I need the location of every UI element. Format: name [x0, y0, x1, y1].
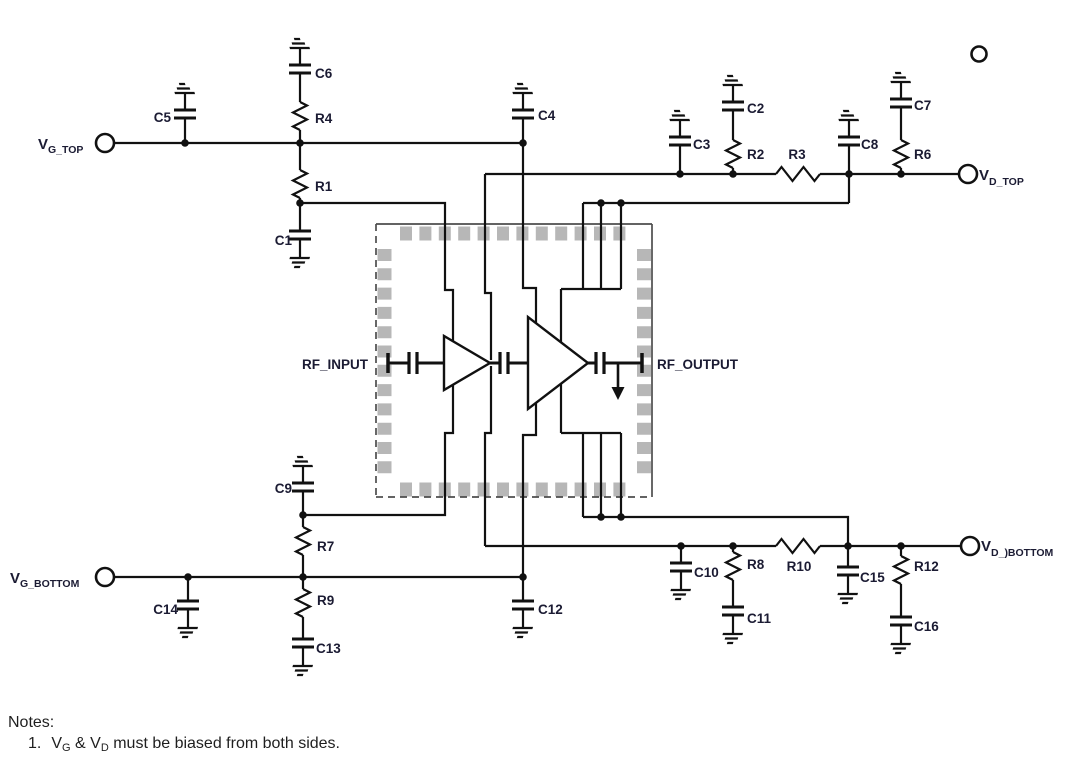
- resistor-r8: [726, 546, 740, 606]
- ground-icon: [835, 594, 858, 603]
- ground-icon: [836, 111, 859, 120]
- ground-icon: [172, 84, 195, 93]
- label-c15: C15: [860, 570, 885, 585]
- label-vd-top: VD_TOP: [979, 167, 1024, 188]
- ground-icon: [888, 644, 911, 653]
- wire-vd-bottom-stub: [583, 517, 848, 546]
- ground-icon: [510, 628, 533, 637]
- vg-top-terminal: [96, 134, 114, 152]
- capacitor-c14: [177, 577, 199, 627]
- amplifier-stage-2: [528, 317, 588, 409]
- series-capacitor-2: [500, 352, 508, 374]
- capacitor-c12: [512, 577, 534, 627]
- ground-icon: [287, 39, 310, 48]
- capacitor-c11: [722, 607, 744, 633]
- schematic-canvas: C5 C6 R4 R1 C1 C4 C3 C2 R2 R3 C8 C7 R6 C…: [0, 0, 1080, 771]
- ground-icon: [290, 457, 313, 466]
- resistor-r6: [894, 140, 908, 174]
- notes-block: Notes: 1.VG & VD must be biased from bot…: [8, 714, 340, 754]
- label-c12: C12: [538, 602, 563, 617]
- capacitor-c4: [512, 94, 534, 143]
- label-r8: R8: [747, 557, 765, 572]
- label-vg-top: VG_TOP: [38, 136, 83, 156]
- label-c3: C3: [693, 137, 711, 152]
- label-rf-input: RF_INPUT: [302, 357, 369, 372]
- resistor-r9: [296, 577, 310, 638]
- label-c6: C6: [315, 66, 333, 81]
- resistor-r2: [726, 140, 740, 174]
- capacitor-c8: [838, 121, 860, 203]
- ground-icon: [720, 634, 743, 643]
- schematic-page: C5 C6 R4 R1 C1 C4 C3 C2 R2 R3 C8 C7 R6 C…: [0, 0, 1080, 771]
- capacitor-c2: [722, 86, 744, 140]
- label-r1: R1: [315, 179, 333, 194]
- label-c4: C4: [538, 108, 556, 123]
- notes-heading: Notes:: [8, 714, 340, 732]
- label-c1: C1: [275, 233, 293, 248]
- label-r9: R9: [317, 593, 334, 608]
- ground-icon: [290, 666, 313, 675]
- vd-bottom-terminal: [961, 537, 979, 555]
- series-capacitor-3: [596, 352, 604, 374]
- label-rf-output: RF_OUTPUT: [657, 357, 739, 372]
- capacitor-c7: [890, 83, 912, 140]
- resistor-r12: [894, 546, 908, 616]
- ground-icon: [175, 628, 198, 637]
- capacitor-c5: [174, 94, 196, 143]
- label-r7: R7: [317, 539, 334, 554]
- resistor-r3: [776, 167, 820, 181]
- label-c8: C8: [861, 137, 879, 152]
- label-r6: R6: [914, 147, 932, 162]
- resistor-r10: [776, 539, 820, 553]
- label-c10: C10: [694, 565, 719, 580]
- vg-bottom-terminal: [96, 568, 114, 586]
- label-r12: R12: [914, 559, 939, 574]
- capacitor-c13: [292, 639, 314, 665]
- ground-icon: [720, 76, 743, 85]
- capacitor-c15: [837, 546, 859, 593]
- label-r2: R2: [747, 147, 764, 162]
- label-c2: C2: [747, 101, 764, 116]
- ground-icon: [888, 73, 911, 82]
- label-c9: C9: [275, 481, 292, 496]
- vd-top-terminal: [959, 165, 977, 183]
- output-ground-arrow: [612, 363, 625, 400]
- label-r10: R10: [787, 559, 812, 574]
- label-c5: C5: [154, 110, 172, 125]
- label-c11: C11: [747, 611, 772, 626]
- ground-icon: [667, 111, 690, 120]
- terminals: [96, 47, 987, 587]
- ground-icon: [668, 590, 691, 599]
- resistor-r7: [296, 515, 310, 577]
- capacitor-c6: [289, 49, 311, 102]
- resistor-r1: [293, 143, 307, 203]
- label-vd-bottom: VD_)BOTTOM: [981, 538, 1053, 559]
- label-vg-bottom: VG_BOTTOM: [10, 570, 80, 590]
- arrow-head-icon: [612, 387, 625, 400]
- stray-circle-marker: [972, 47, 987, 62]
- amplifier-stage-1: [444, 336, 490, 390]
- label-c16: C16: [914, 619, 939, 634]
- label-c14: C14: [153, 602, 178, 617]
- wire-drain1-bottom: [485, 366, 491, 546]
- capacitor-c10: [670, 546, 692, 589]
- ground-icon: [510, 84, 533, 93]
- capacitor-c16: [890, 617, 912, 643]
- ground-icon: [287, 258, 310, 267]
- resistor-r4: [293, 102, 307, 143]
- note-1: 1.VG & VD must be biased from both sides…: [8, 735, 340, 754]
- label-r4: R4: [315, 111, 333, 126]
- label-r3: R3: [788, 147, 806, 162]
- capacitor-c9: [292, 467, 314, 515]
- label-c13: C13: [316, 641, 341, 656]
- wire-drain1-top: [485, 174, 491, 360]
- capacitor-c3: [669, 121, 691, 174]
- capacitor-c1: [289, 203, 311, 257]
- label-c7: C7: [914, 98, 931, 113]
- series-capacitor-1: [409, 352, 417, 374]
